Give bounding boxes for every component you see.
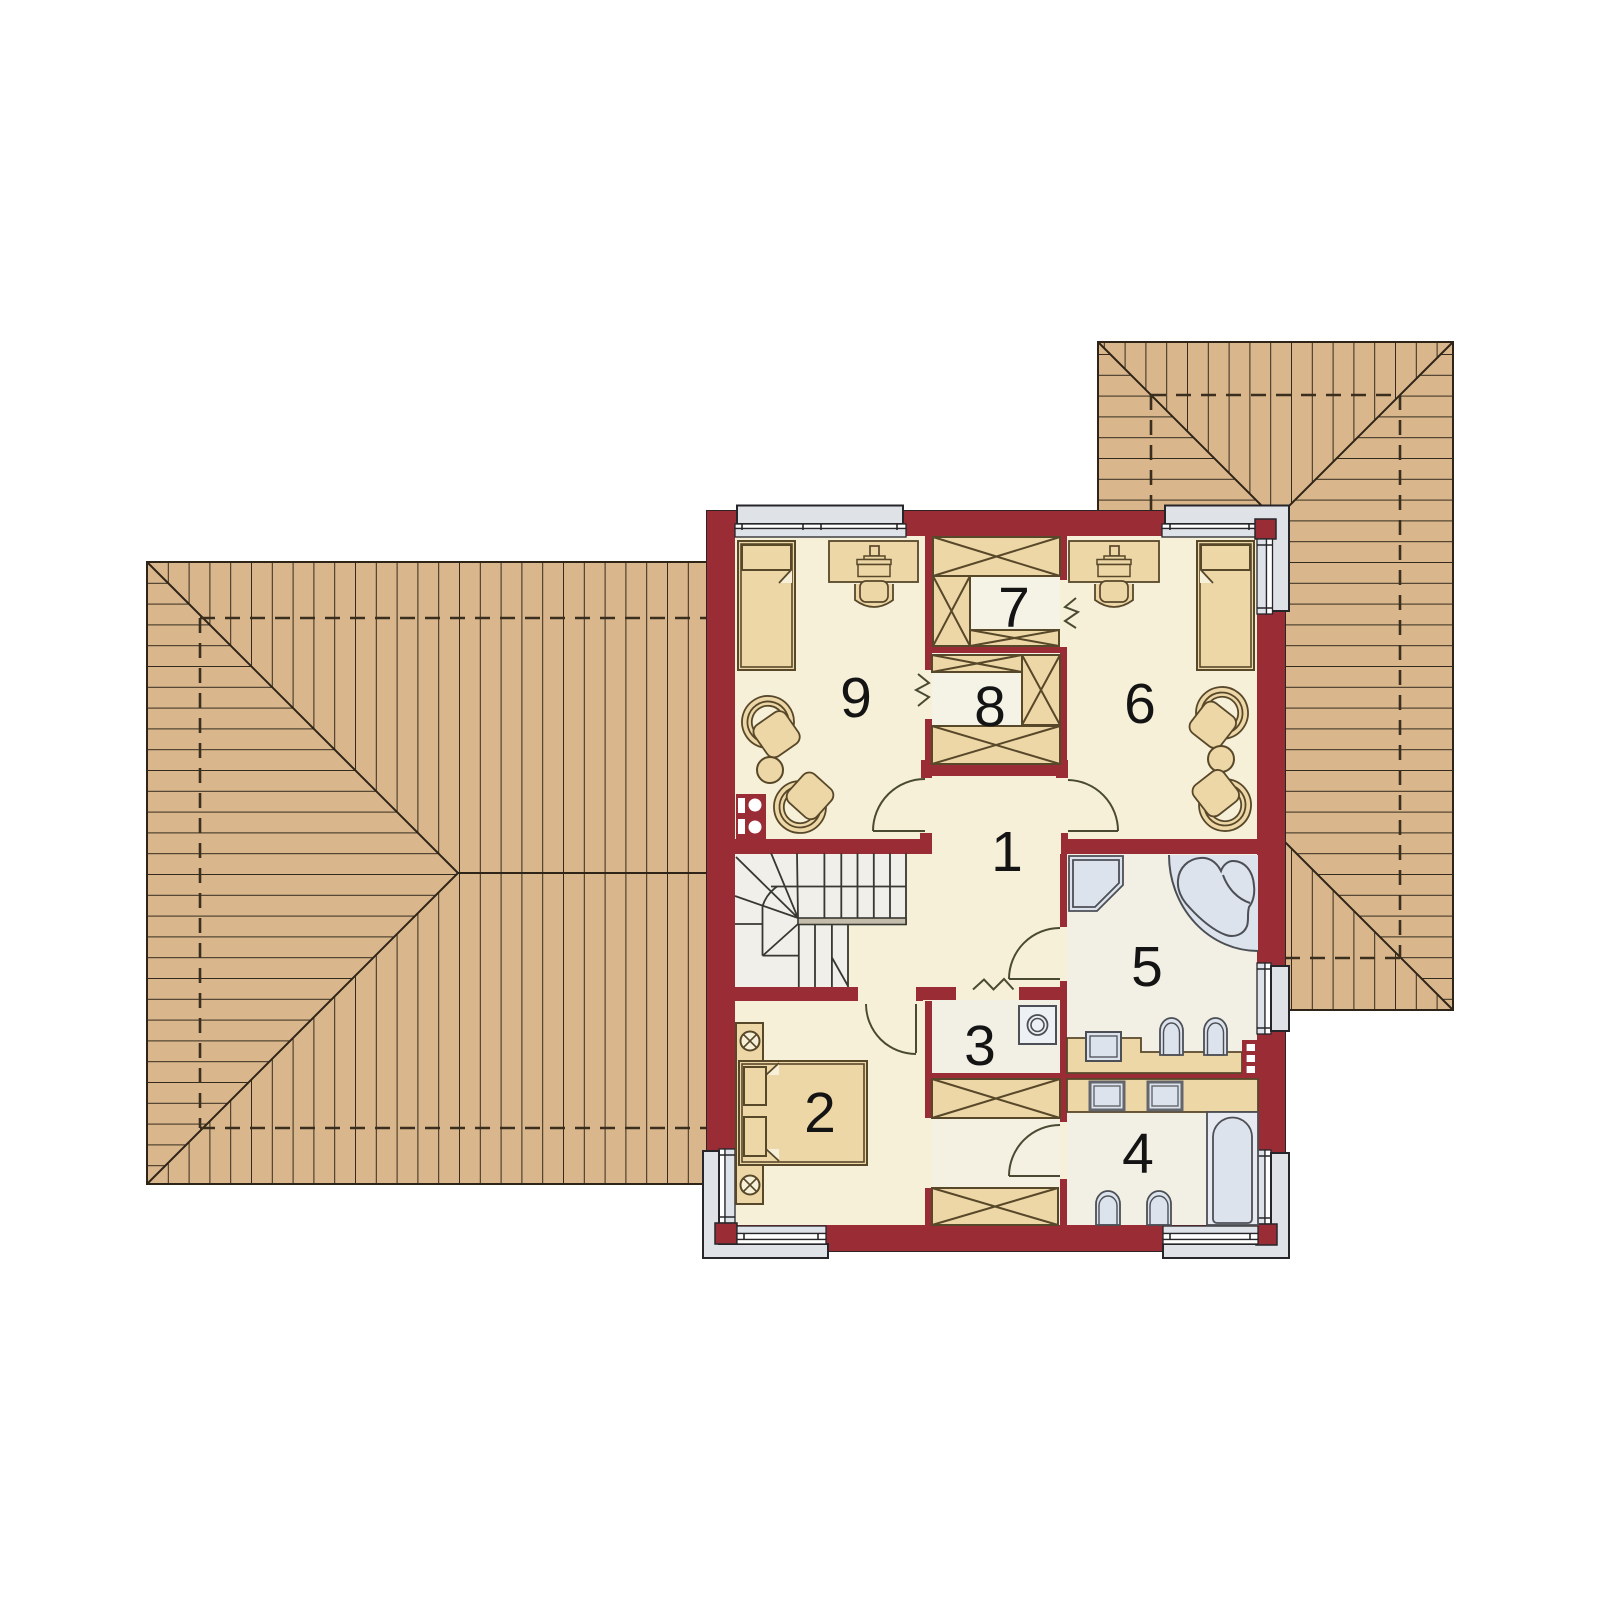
svg-text:7: 7	[998, 576, 1030, 640]
svg-text:2: 2	[804, 1081, 836, 1145]
svg-text:4: 4	[1122, 1122, 1154, 1186]
svg-text:1: 1	[991, 820, 1023, 884]
svg-text:9: 9	[840, 666, 872, 730]
svg-text:8: 8	[974, 675, 1006, 739]
svg-text:3: 3	[964, 1014, 996, 1078]
svg-text:6: 6	[1124, 672, 1156, 736]
svg-text:5: 5	[1131, 935, 1163, 999]
